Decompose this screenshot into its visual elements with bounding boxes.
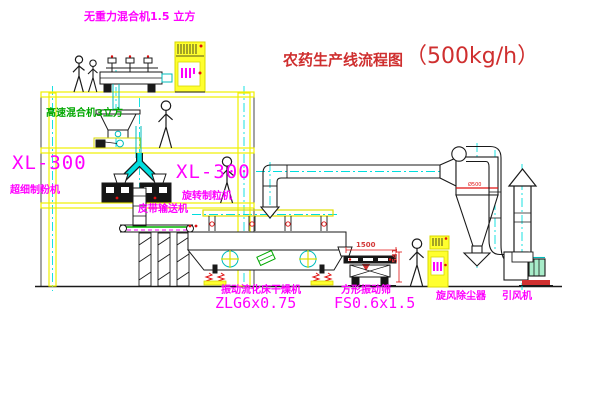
label-mill-model-left: XL-300 — [12, 154, 87, 173]
person-figure-3 — [159, 101, 173, 148]
label-cyclone: 旋风除尘器 — [436, 292, 486, 302]
cyclone-separator: Ø500 — [452, 147, 513, 267]
person-figure-2 — [88, 60, 98, 92]
dryer-hangers — [209, 216, 327, 231]
label-fan: 引风机 — [502, 292, 532, 302]
label-mill-name-left: 超细制粉机 — [10, 186, 60, 196]
label-granulator-model: XL-300 — [176, 163, 251, 182]
label-dim-length: 1500 — [356, 242, 375, 249]
cyclone-size-mark: Ø500 — [468, 181, 481, 188]
label-high-speed-mixer: 高速混合机3立方 — [46, 109, 123, 119]
label-gravity-mixer: 无重力混合机1.5 立方 — [84, 11, 195, 22]
control-cabinet-top — [175, 42, 205, 92]
exhaust-duct — [261, 158, 456, 218]
title-capacity: （500kg/h） — [405, 46, 539, 68]
belt-conveyor — [120, 225, 198, 286]
gravity-mixer — [100, 55, 172, 110]
fluid-bed-dryer — [188, 210, 346, 285]
page-title: 农药生产线流程图 （500kg/h） — [283, 46, 539, 68]
label-sieve-model: FS0.6x1.5 — [334, 296, 415, 311]
label-dryer-model: ZLG6x0.75 — [215, 296, 296, 311]
conveyor-support-posts — [139, 233, 189, 286]
control-cabinet-right — [428, 236, 449, 287]
label-belt-conveyor: 皮带输送机 — [138, 205, 188, 215]
person-figure-1 — [73, 56, 85, 92]
title-text: 农药生产线流程图 — [283, 53, 403, 68]
label-dim-height: 541 — [392, 248, 399, 263]
label-granulator-name: 旋转制粒机 — [182, 192, 232, 202]
exhaust-stack — [509, 169, 536, 262]
person-figure-5 — [410, 239, 424, 286]
flow-diagram-canvas: Ø500 — [0, 0, 600, 403]
